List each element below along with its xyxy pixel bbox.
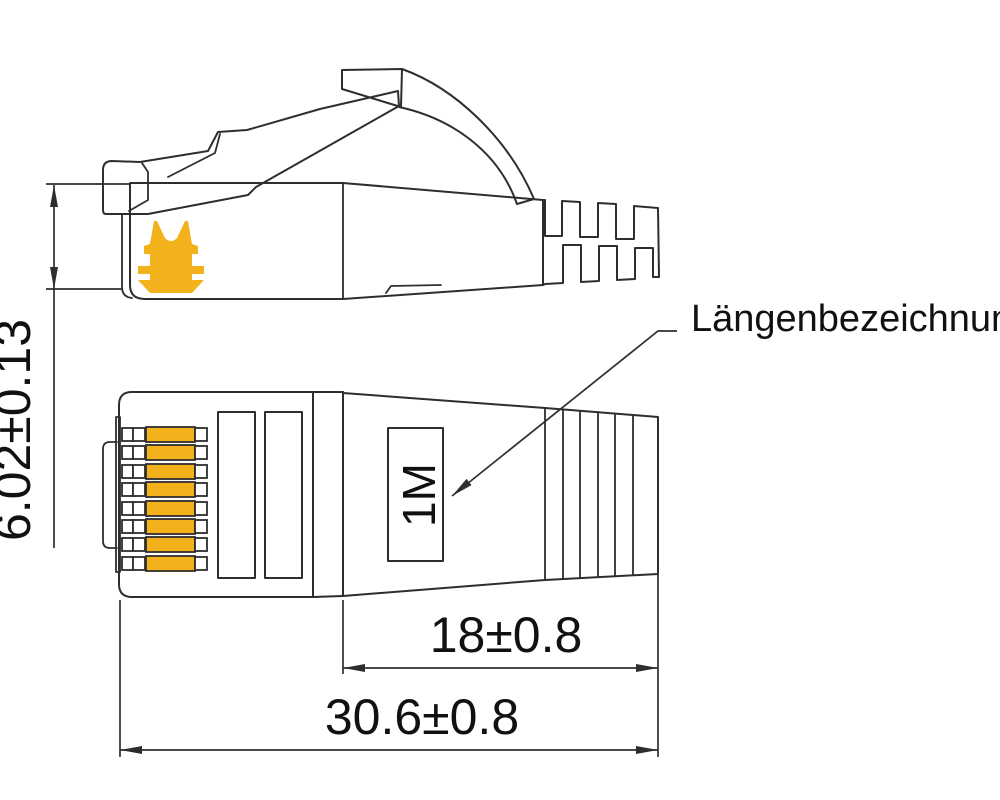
arrow-up-icon bbox=[50, 185, 58, 207]
strain-relief-boot-side bbox=[543, 200, 659, 285]
pin-contact-row bbox=[122, 482, 207, 497]
technical-drawing-canvas: 6.02±0.13 1M Längenb bbox=[0, 0, 1000, 800]
arrow-right-icon bbox=[636, 664, 658, 672]
arrow-right-icon bbox=[636, 746, 658, 754]
dim-plug-height: 6.02±0.13 bbox=[0, 184, 130, 548]
length-designation-label: Längenbezeichnung bbox=[691, 298, 1000, 340]
leader-arrow-icon bbox=[452, 479, 472, 496]
overall-length-dimension-text: 30.6±0.8 bbox=[325, 689, 519, 745]
arrow-down-icon bbox=[50, 267, 58, 289]
pin-contacts bbox=[122, 427, 207, 571]
latch-hook-chamfer bbox=[129, 163, 148, 211]
bottom-view: 1M bbox=[103, 392, 658, 597]
pin-contact-row bbox=[122, 519, 207, 534]
collar-bottom-edge bbox=[313, 596, 343, 597]
side-view bbox=[103, 69, 659, 299]
pin-contact-row bbox=[122, 537, 207, 552]
pin-contact-row bbox=[122, 427, 207, 442]
pin-contact-row bbox=[122, 556, 207, 571]
boot-length-dimension-text: 18±0.8 bbox=[430, 607, 583, 663]
body-window-1 bbox=[218, 412, 255, 578]
body-window-2 bbox=[265, 412, 302, 578]
arrow-left-icon bbox=[343, 664, 365, 672]
boot-rib-lines bbox=[545, 408, 633, 580]
leader-line bbox=[452, 331, 677, 496]
length-designation-callout: Längenbezeichnung bbox=[452, 298, 1000, 496]
latch-arc-band bbox=[399, 69, 534, 204]
arrow-left-icon bbox=[120, 746, 142, 754]
cable-clip-icon bbox=[138, 221, 204, 293]
plug-height-dimension-text: 6.02±0.13 bbox=[0, 319, 41, 541]
pin-contact-row bbox=[122, 464, 207, 479]
length-marking-text: 1M bbox=[393, 463, 445, 527]
pin-contact-row bbox=[122, 501, 207, 516]
strain-relief-boot-bottom bbox=[343, 393, 658, 596]
pin-contact-row bbox=[122, 445, 207, 460]
rj45-plug-drawing: 6.02±0.13 1M Längenb bbox=[0, 0, 1000, 800]
front-bracket bbox=[103, 442, 117, 548]
